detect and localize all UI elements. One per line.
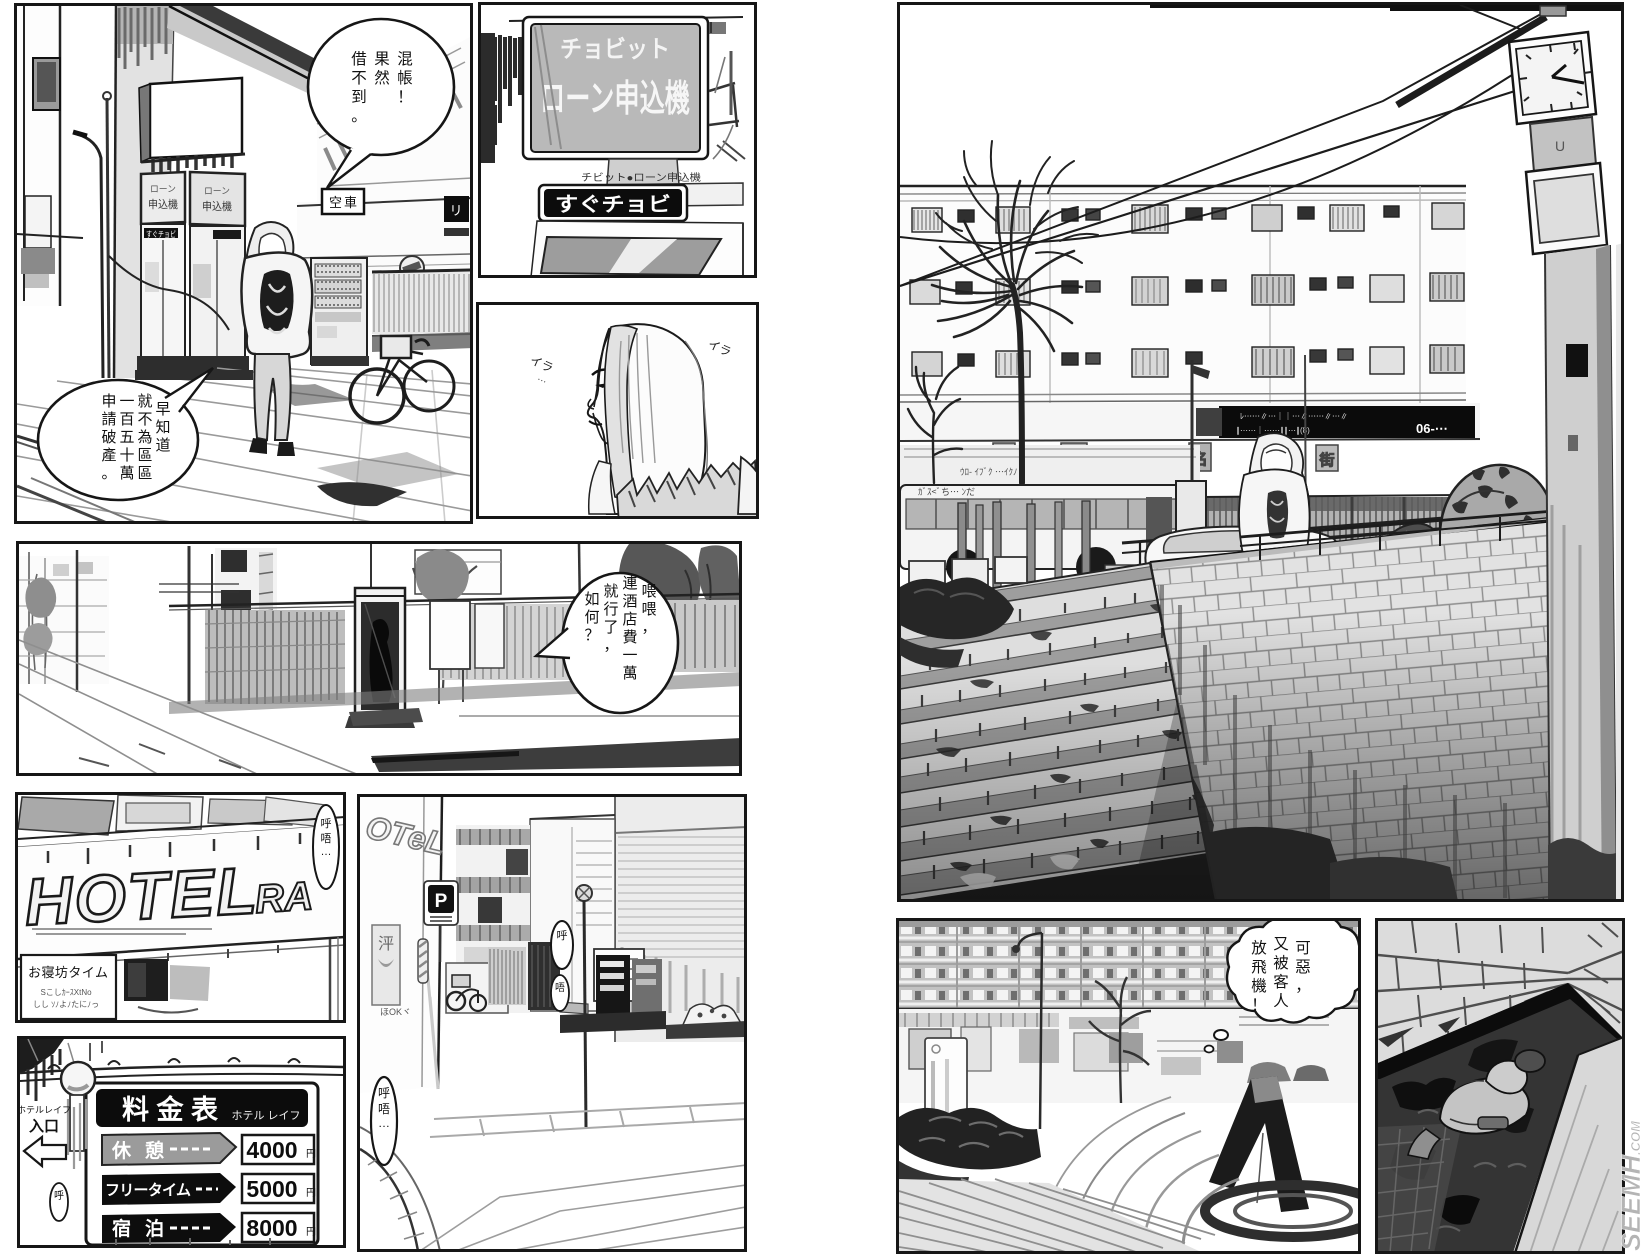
svg-text:休 憩: 休 憩 [111,1139,164,1162]
svg-text:円: 円 [306,1149,316,1160]
svg-text:一百五十萬: 一百五十萬 [119,393,134,482]
svg-text:料金表: 料金表 [122,1094,218,1125]
svg-text:街: 街 [1319,452,1334,469]
svg-text:円: 円 [306,1188,316,1199]
svg-text:混帳！: 混帳！ [397,50,413,106]
svg-text:フリータイム: フリータイム [105,1182,191,1199]
svg-text:P: P [435,891,448,912]
svg-text:RA: RA [254,874,315,922]
svg-text:すぐチョビ: すぐチョビ [146,230,176,239]
svg-text:ｳﾛ- ｲﾌﾞｸ ⋯ｲｸﾉ: ｳﾛ- ｲﾌﾞｸ ⋯ｲｸﾉ [960,467,1018,477]
svg-text:就不為區區: 就不為區區 [137,393,152,482]
svg-text:U: U [1555,138,1565,154]
svg-text:如何？: 如何？ [584,591,599,644]
svg-text:チョビット: チョビット [560,36,670,63]
svg-text:ほOKヾ: ほOKヾ [380,1007,411,1017]
svg-text:…: … [536,372,550,386]
svg-text:ホテルレイフ: ホテルレイフ [20,1105,71,1115]
svg-text:宿 泊: 宿 泊 [112,1217,164,1240]
svg-text:申請破產。: 申請破產。 [101,393,116,482]
svg-text:SEEMH.COM: SEEMH.COM [1616,1120,1646,1251]
svg-text:円: 円 [306,1227,316,1238]
svg-text:リ: リ [449,203,462,218]
svg-text:連酒店費一萬: 連酒店費一萬 [622,575,637,682]
svg-text:ローン: ローン [150,184,176,194]
svg-text:5000: 5000 [246,1176,297,1202]
svg-text:ﾚ⋯⋯∥⋯｜｜⋯∥⋯⋯∥⋯∥: ﾚ⋯⋯∥⋯｜｜⋯∥⋯⋯∥⋯∥ [1240,412,1348,421]
svg-text:呼唔…: 呼唔… [321,817,332,858]
svg-text:唔: 唔 [555,982,565,994]
svg-text:泙: 泙 [378,935,394,953]
svg-text:呼: 呼 [54,1190,64,1202]
svg-text:申込機: 申込機 [202,199,232,213]
svg-text:入口: 入口 [29,1118,59,1135]
svg-text:4000: 4000 [246,1137,297,1163]
svg-text:喂喂，: 喂喂， [641,583,656,636]
svg-text:06-⋯: 06-⋯ [1416,421,1448,436]
svg-text:しし ｿﾉよﾉたにﾉっ: しし ｿﾉよﾉたにﾉっ [33,1000,99,1009]
svg-text:ローン: ローン [204,186,230,196]
svg-text:ローン申込機: ローン申込機 [540,78,690,119]
svg-text:早知道: 早知道 [155,401,170,454]
svg-text:SこしｶｰｽXtNo: SこしｶｰｽXtNo [40,988,92,997]
svg-text:イラ: イラ [706,337,734,360]
svg-text:HOTEL: HOTEL [23,853,260,939]
svg-text:呼: 呼 [557,929,568,942]
svg-text:就行了，: 就行了， [603,583,618,654]
svg-text:可惡，: 可惡， [1295,940,1311,995]
svg-text:空車: 空車 [329,195,357,210]
svg-text:チビット●ローン申込機: チビット●ローン申込機 [581,171,701,184]
svg-text:呼唔…: 呼唔… [378,1086,390,1130]
svg-text:ｶﾞｽ<ﾞち⋯ ﾝだ: ｶﾞｽ<ﾞち⋯ ﾝだ [918,487,975,497]
svg-text:8000: 8000 [246,1215,297,1241]
svg-text:お寝坊タイム: お寝坊タイム [28,965,108,980]
svg-text:ホテル レイフ: ホテル レイフ [231,1109,300,1122]
svg-text:申込機: 申込機 [148,197,178,211]
svg-text:すぐチョビ: すぐチョビ [555,193,671,216]
